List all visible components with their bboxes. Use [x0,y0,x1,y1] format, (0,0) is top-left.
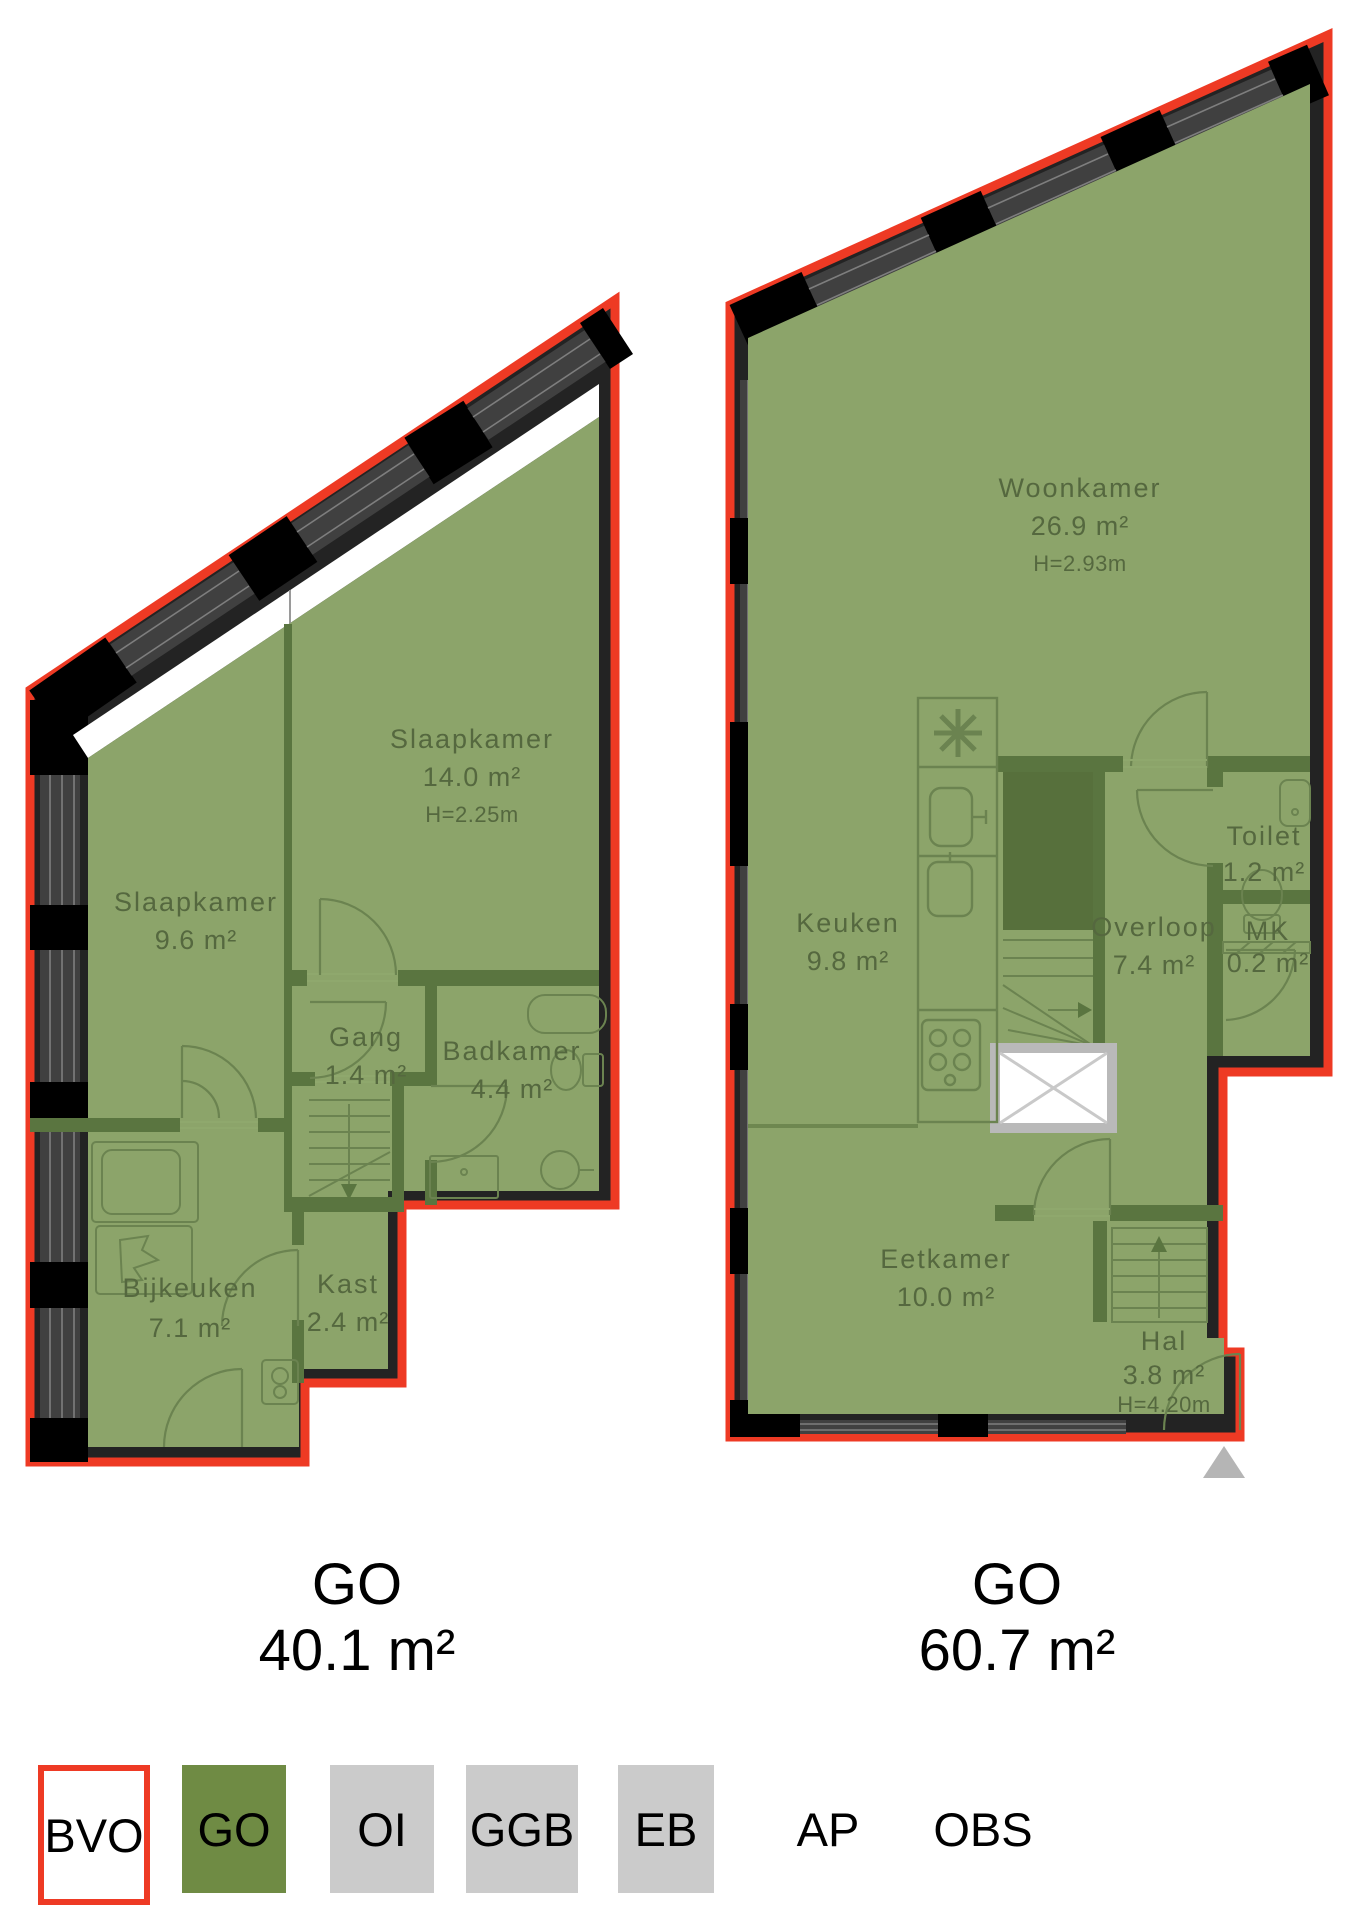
room-label-slaapkamer-2: Slaapkamer [390,724,554,754]
room-label-gang: Gang [329,1022,403,1052]
stair-shaft [1003,772,1093,930]
room-area-keuken: 9.8 m² [807,946,890,976]
go-area-right-value: 60.7 m² [817,1618,1217,1684]
go-area-left-value: 40.1 m² [157,1618,557,1684]
legend-label-ap: AP [797,1802,860,1857]
room-height-hal: H=4.20m [1117,1392,1210,1417]
room-label-hal: Hal [1141,1326,1188,1356]
room-label-toilet: Toilet [1226,821,1301,851]
go-summary-left: GO 40.1 m² [157,1552,557,1684]
legend-item-obs: OBS [908,1765,1058,1893]
go-summary-right: GO 60.7 m² [817,1552,1217,1684]
room-area-overloop: 7.4 m² [1113,950,1196,980]
floorplan-page: Slaapkamer 9.6 m² Slaapkamer 14.0 m² H=2… [0,0,1358,1920]
room-height-woonkamer: H=2.93m [1033,551,1126,576]
room-height-slaapkamer-2: H=2.25m [425,802,518,827]
room-area-badkamer: 4.4 m² [471,1074,554,1104]
room-label-mk: MK [1246,916,1291,946]
room-area-slaapkamer-1: 9.6 m² [155,925,238,955]
room-area-slaapkamer-2: 14.0 m² [423,762,522,792]
legend-label-eb: EB [635,1802,698,1857]
legend-label-bvo: BVO [44,1808,143,1863]
room-label-bijkeuken: Bijkeuken [122,1273,257,1303]
room-area-bijkeuken: 7.1 m² [149,1313,232,1343]
legend-label-go: GO [197,1802,270,1857]
entrance-arrow [1203,1446,1245,1478]
go-label-left: GO [157,1552,557,1618]
legend-item-eb: EB [618,1765,714,1893]
legend-item-ap: AP [768,1765,888,1893]
legend-item-ggb: GGB [466,1765,578,1893]
go-label-right: GO [817,1552,1217,1618]
room-area-hal: 3.8 m² [1123,1360,1206,1390]
room-area-kast: 2.4 m² [307,1307,390,1337]
room-label-overloop: Overloop [1091,912,1217,942]
legend-item-go: GO [182,1765,286,1893]
room-area-gang: 1.4 m² [325,1060,408,1090]
floorplans-drawing: Slaapkamer 9.6 m² Slaapkamer 14.0 m² H=2… [0,0,1358,1545]
room-area-toilet: 1.2 m² [1223,857,1306,887]
room-label-eetkamer: Eetkamer [880,1244,1012,1274]
legend-label-ggb: GGB [470,1802,574,1857]
room-label-keuken: Keuken [796,908,900,938]
room-label-woonkamer: Woonkamer [998,473,1161,503]
room-label-badkamer: Badkamer [442,1036,581,1066]
legend-label-obs: OBS [933,1802,1032,1857]
legend: BVO GO OI GGB EB AP OBS [0,1765,1358,1893]
room-area-mk: 0.2 m² [1227,948,1310,978]
legend-item-bvo: BVO [38,1765,150,1905]
fan-icon [934,709,982,757]
void-shaft-box [995,1048,1112,1128]
room-area-eetkamer: 10.0 m² [897,1282,996,1312]
room-label-slaapkamer-1: Slaapkamer [114,887,278,917]
legend-label-oi: OI [357,1802,407,1857]
legend-item-oi: OI [330,1765,434,1893]
room-area-woonkamer: 26.9 m² [1031,511,1130,541]
floorplan-right [730,35,1328,1478]
room-label-kast: Kast [317,1269,379,1299]
